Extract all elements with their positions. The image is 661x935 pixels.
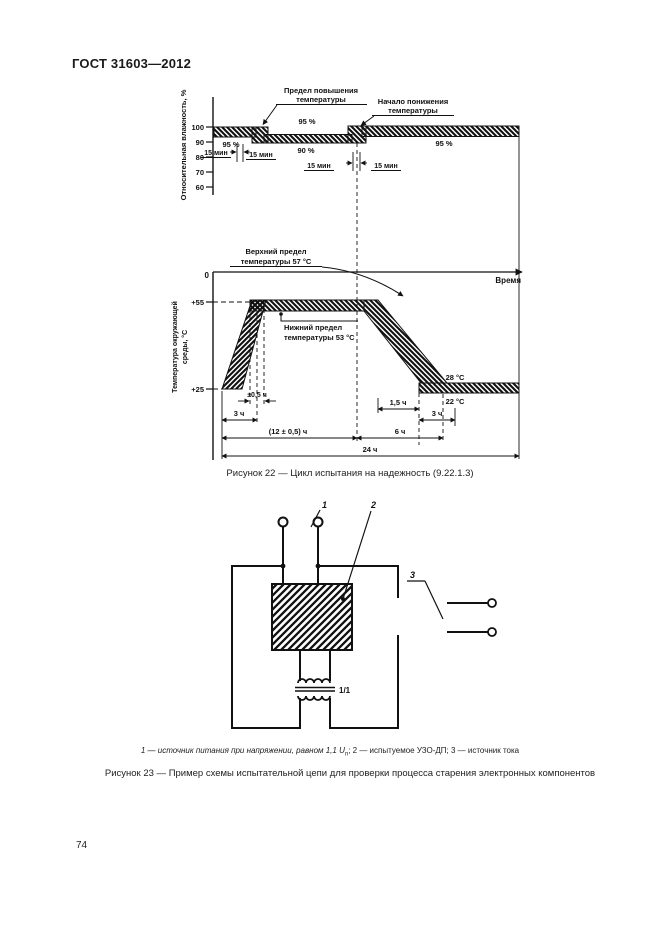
page-number: 74 (76, 840, 87, 851)
dim-15min-2: 15 мин (249, 152, 272, 159)
dimension-row-2: (12 ± 0,5) ч 6 ч (222, 427, 443, 438)
dim-3h-left: 3 ч (234, 409, 245, 418)
document-title: ГОСТ 31603—2012 (72, 56, 191, 71)
dimension-lines (222, 137, 519, 459)
figure23-circuit-diagram: 1/1 1 2 3 (215, 492, 505, 745)
dim-3h-right: 3 ч (432, 409, 443, 418)
label-22C: 22 °C (446, 397, 465, 406)
dim-15h: 1,5 ч (390, 398, 407, 407)
callout-3: 3 (410, 570, 415, 580)
transformer-ratio-label: 1/1 (339, 686, 351, 695)
callout-1: 1 (322, 500, 327, 510)
footnote-part1: 1 — источник питания при напряжении, рав… (141, 746, 339, 755)
humidity-label-mid-bottom: 90 % (297, 146, 314, 155)
humidity-axis-label: Относительная влажность, % (179, 89, 188, 200)
dim-15min-3: 15 мин (307, 163, 330, 170)
figure23-caption: Рисунок 23 — Пример схемы испытательной … (50, 768, 650, 779)
humidity-label-right: 95 % (435, 139, 452, 148)
dimension-row-3: 24 ч (222, 445, 519, 456)
figure23-footnote: 1 — источник питания при напряжении, рав… (40, 746, 620, 758)
humidity-tick-60: 60 (196, 183, 204, 192)
origin-label: 0 (205, 271, 210, 280)
dim-05h: ±0,5 ч (247, 392, 267, 399)
dim-15min-1: 15 мин (204, 150, 227, 157)
current-source-terminal-bottom (488, 628, 496, 636)
supply-terminals (279, 518, 323, 585)
humidity-tick-70: 70 (196, 168, 204, 177)
upper-limit-line1: Верхний предел (245, 247, 306, 256)
humidity-tick-90: 90 (196, 138, 204, 147)
annotation-lower-limit: Нижний предел температуры 53 °C (279, 312, 358, 342)
temp-tick-25: +25 (191, 385, 204, 394)
dim-15min-4: 15 мин (374, 163, 397, 170)
temp-axis-label-line1: Температура окружающей (171, 301, 179, 393)
callout-2: 2 (370, 500, 376, 510)
document-page: { "page": { "header": "ГОСТ 31603—2012",… (0, 0, 661, 935)
ann-rise-line1: Предел повышения (284, 86, 358, 95)
device-under-test-box (272, 584, 352, 650)
humidity-label-mid-top: 95 % (298, 117, 315, 126)
lower-limit-line2: температуры 53 °C (284, 333, 355, 342)
current-source-terminal-top (488, 599, 496, 607)
isolating-transformer (295, 679, 335, 700)
dim-6h: 6 ч (395, 427, 406, 436)
upper-limit-line2: температуры 57 °C (241, 257, 312, 266)
time-axis-label: Время (495, 276, 521, 285)
humidity-tick-100: 100 (191, 123, 204, 132)
footnote-part2: ; 2 — испытуемое УЗО-ДП; 3 — источник то… (348, 746, 519, 755)
temp-tick-55: +55 (191, 298, 204, 307)
lower-limit-line1: Нижний предел (284, 323, 342, 332)
ann-fall-line2: температуры (388, 106, 438, 115)
dim-12h: (12 ± 0,5) ч (269, 427, 308, 436)
humidity-bands (214, 126, 519, 143)
humidity-axis: 100 90 80 70 60 Относительная влажность,… (179, 89, 213, 200)
temperature-profile (222, 300, 519, 393)
dim-24h: 24 ч (363, 445, 378, 454)
label-28C: 28 °C (446, 373, 465, 382)
figure22-caption: Рисунок 22 — Цикл испытания на надежност… (50, 468, 650, 479)
ann-rise-line2: температуры (296, 95, 346, 104)
temp-axis-label-line2: среды, °C (181, 330, 189, 364)
time-axis: Время 0 (205, 271, 522, 285)
annotation-temp-fall-start: Начало понижения температуры (361, 97, 454, 126)
ann-fall-line1: Начало понижения (378, 97, 448, 106)
figure22-test-cycle-chart: 100 90 80 70 60 Относительная влажность,… (168, 80, 540, 462)
